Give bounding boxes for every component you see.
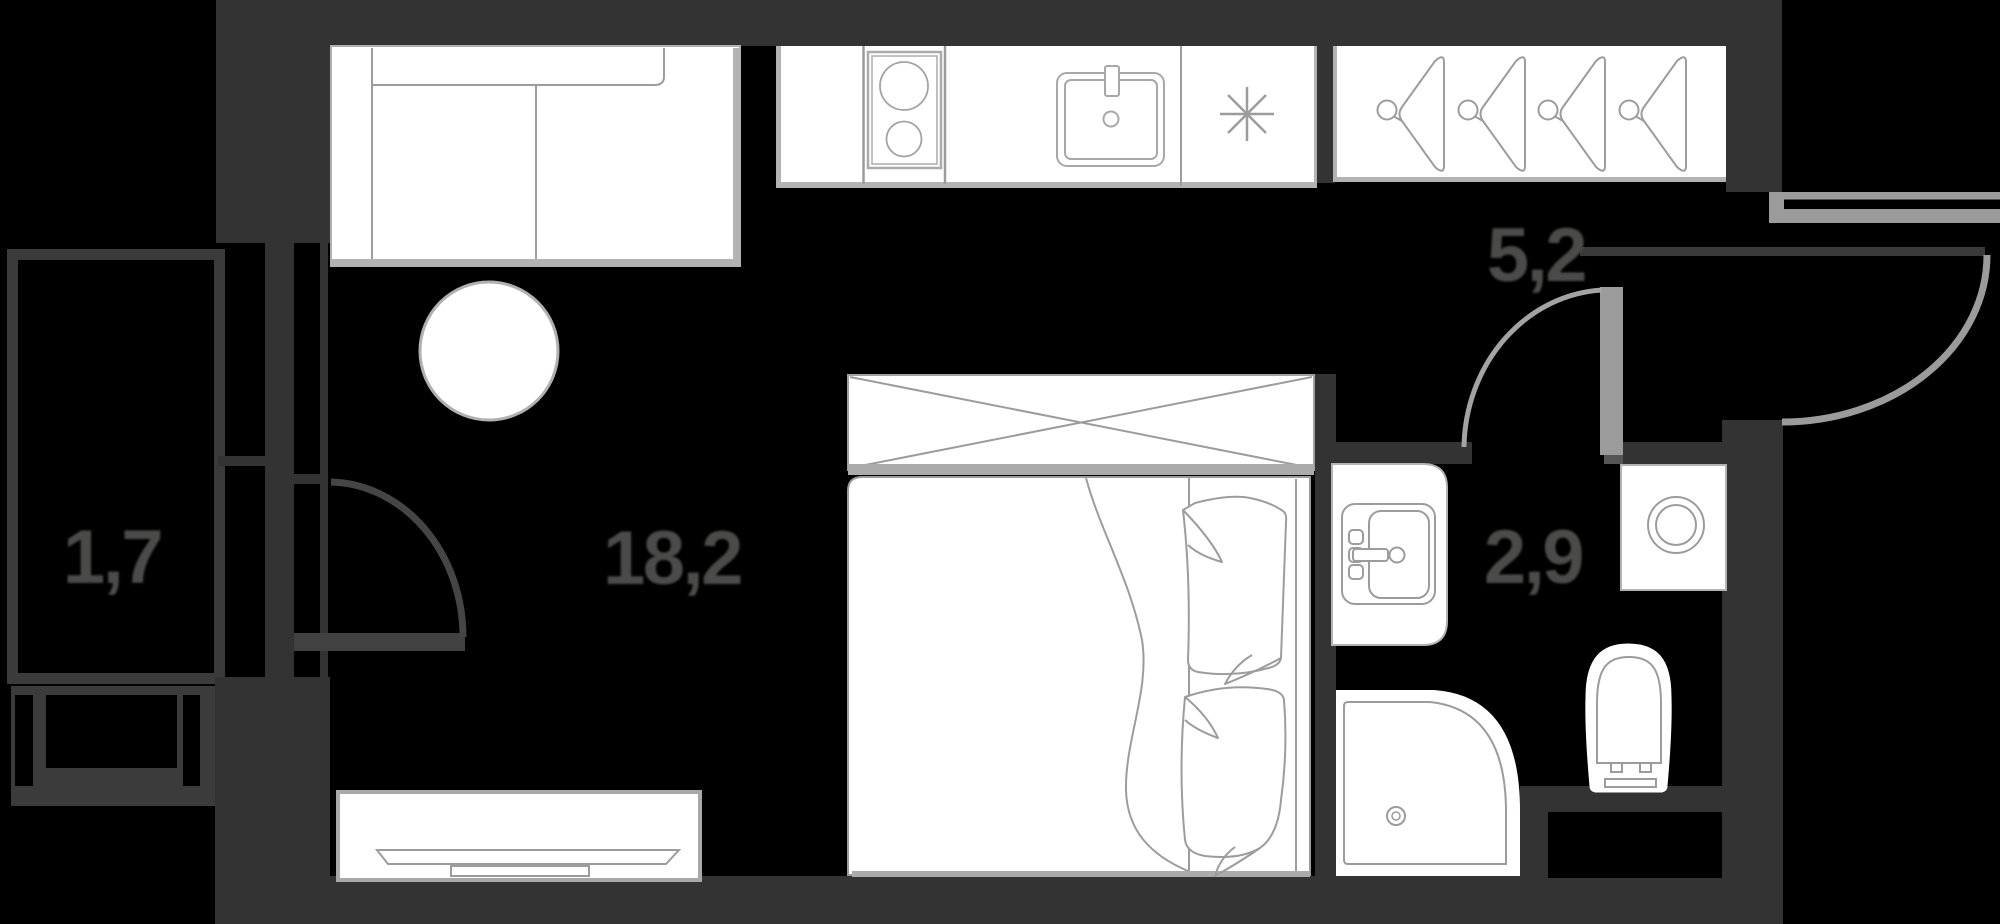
- svg-text:18,2: 18,2: [603, 516, 741, 601]
- svg-text:1,7: 1,7: [63, 515, 161, 600]
- svg-text:5,2: 5,2: [1487, 213, 1585, 298]
- svg-text:2,9: 2,9: [1484, 515, 1582, 600]
